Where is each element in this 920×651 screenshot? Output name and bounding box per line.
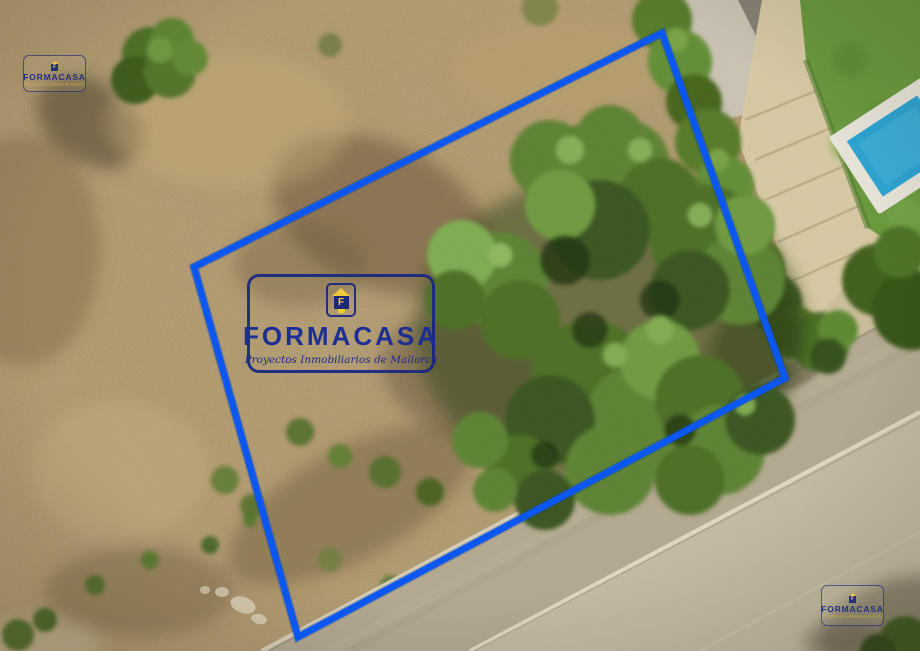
lighthouse-tower-monogram: F <box>334 296 349 309</box>
brand-tagline: Proyectos Inmobiliarios de Mallorca <box>24 82 84 87</box>
brand-name: FORMACASA <box>23 72 85 82</box>
brand-name: FORMACASA <box>821 604 883 614</box>
brand-tagline: Proyectos Inmobiliarios de Mallorca <box>245 354 438 366</box>
formacasa-lighthouse-icon: F <box>848 593 857 603</box>
aerial-listing-photo: F FORMACASA Proyectos Inmobiliarios de M… <box>0 0 920 651</box>
corner-logo-top-left: F FORMACASA Proyectos Inmobiliarios de M… <box>23 55 86 92</box>
lighthouse-tower-monogram: F <box>51 64 58 71</box>
formacasa-lighthouse-icon: F <box>326 283 356 317</box>
brand-tagline: Proyectos Inmobiliarios de Mallorca <box>822 614 882 619</box>
lighthouse-roof <box>332 288 350 296</box>
corner-logo-bottom-right: F FORMACASA Proyectos Inmobiliarios de M… <box>821 585 884 626</box>
lighthouse-tower-monogram: F <box>849 596 856 603</box>
brand-name: FORMACASA <box>243 321 439 352</box>
aerial-photo <box>0 0 920 651</box>
lighthouse-base <box>338 309 345 313</box>
center-watermark-card: F FORMACASA Proyectos Inmobiliarios de M… <box>247 274 435 373</box>
formacasa-lighthouse-icon: F <box>50 61 59 71</box>
